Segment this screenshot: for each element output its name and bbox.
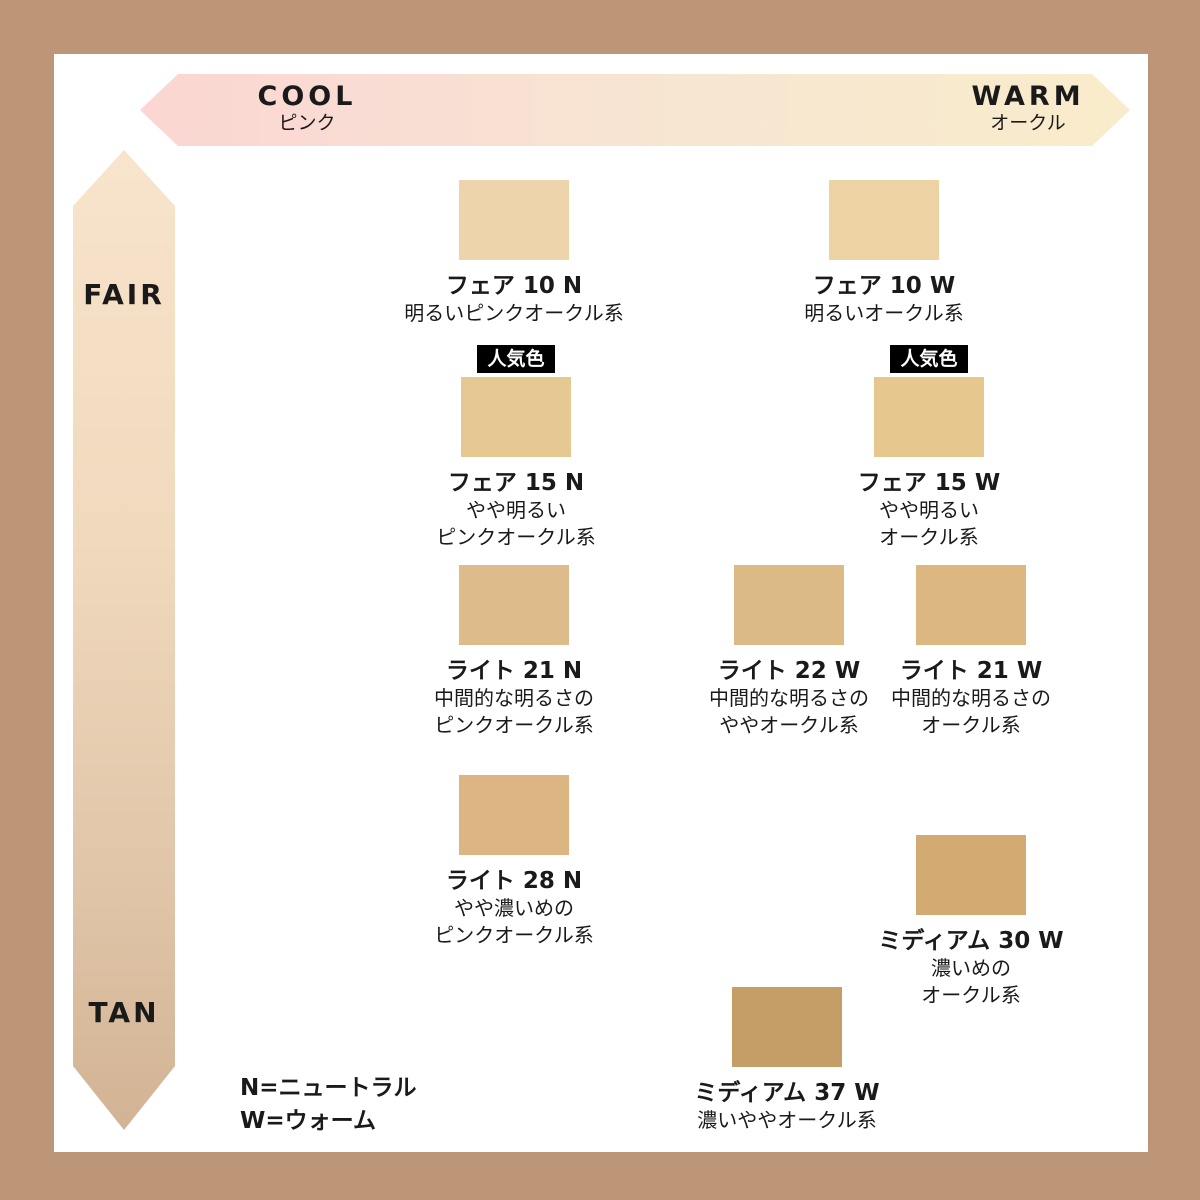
shade-name: ライト 21 W	[900, 658, 1042, 685]
shade-description: オークル系	[921, 982, 1020, 1009]
shade-description: オークル系	[879, 524, 978, 551]
legend-warm: W=ウォーム	[240, 1105, 417, 1138]
shade-swatch-light-28n	[459, 775, 569, 855]
shade-code-legend: N=ニュートラル W=ウォーム	[240, 1072, 417, 1138]
shade-description: ピンクオークル系	[434, 922, 593, 949]
chart-canvas: COOL ピンク WARM オークル FAIR TAN フェア 10 N 明るい…	[54, 54, 1148, 1152]
popular-badge: 人気色	[477, 345, 554, 373]
popular-badge: 人気色	[890, 345, 967, 373]
shade-fair-15n: 人気色 フェア 15 N やや明るい ピンクオークル系	[386, 345, 646, 551]
shade-medium-37w: ミディアム 37 W 濃いややオークル系	[657, 987, 917, 1134]
shade-name: ライト 22 W	[718, 658, 860, 685]
shade-medium-30w: ミディアム 30 W 濃いめの オークル系	[841, 835, 1101, 1009]
tan-label: TAN	[73, 996, 175, 1029]
shade-description: やや明るい	[879, 497, 979, 524]
shade-light-28n: ライト 28 N やや濃いめの ピンクオークル系	[384, 775, 644, 949]
shade-description: 濃いめの	[931, 955, 1011, 982]
shade-fair-15w: 人気色 フェア 15 W やや明るい オークル系	[799, 345, 1059, 551]
shade-light-21w: ライト 21 W 中間的な明るさの オークル系	[841, 565, 1101, 739]
shade-swatch-medium-37w	[732, 987, 842, 1067]
shade-swatch-fair-10w	[829, 180, 939, 260]
shade-name: ミディアム 30 W	[878, 928, 1063, 955]
shade-description: ピンクオークル系	[434, 712, 593, 739]
warm-axis-label: WARM オークル	[971, 74, 1084, 134]
shade-name: フェア 10 N	[446, 273, 582, 300]
shade-swatch-light-21n	[459, 565, 569, 645]
shade-swatch-light-22w	[734, 565, 844, 645]
shade-fair-10n: フェア 10 N 明るいピンクオークル系	[384, 180, 644, 327]
shade-name: ミディアム 37 W	[694, 1080, 879, 1107]
shade-name: ライト 21 N	[446, 658, 582, 685]
shade-description: やや濃いめの	[454, 895, 574, 922]
shade-name: ライト 28 N	[446, 868, 582, 895]
shade-description: 明るいピンクオークル系	[404, 300, 623, 327]
warm-label: WARM	[971, 82, 1084, 112]
shade-name: フェア 10 W	[813, 273, 955, 300]
cool-sublabel: ピンク	[258, 112, 357, 134]
shade-swatch-light-21w	[916, 565, 1026, 645]
legend-neutral: N=ニュートラル	[240, 1072, 417, 1105]
shade-description: オークル系	[921, 712, 1020, 739]
shade-swatch-fair-15w	[874, 377, 984, 457]
shade-description: 中間的な明るさの	[434, 685, 594, 712]
cool-axis-label: COOL ピンク	[258, 74, 357, 134]
shade-name: フェア 15 W	[858, 470, 1000, 497]
shade-description: 中間的な明るさの	[891, 685, 1051, 712]
shade-description: やや明るい	[466, 497, 566, 524]
foundation-shade-chart: COOL ピンク WARM オークル FAIR TAN フェア 10 N 明るい…	[0, 0, 1200, 1200]
fair-label: FAIR	[73, 278, 175, 311]
shade-description: 濃いややオークル系	[697, 1107, 876, 1134]
warm-sublabel: オークル	[971, 112, 1084, 134]
shade-name: フェア 15 N	[448, 470, 584, 497]
shade-fair-10w: フェア 10 W 明るいオークル系	[754, 180, 1014, 327]
shade-light-21n: ライト 21 N 中間的な明るさの ピンクオークル系	[384, 565, 644, 739]
cool-warm-axis-arrow: COOL ピンク WARM オークル	[140, 74, 1130, 146]
shade-swatch-fair-10n	[459, 180, 569, 260]
shade-description: 明るいオークル系	[804, 300, 963, 327]
shade-description: ややオークル系	[719, 712, 858, 739]
shade-swatch-fair-15n	[461, 377, 571, 457]
shade-description: ピンクオークル系	[436, 524, 595, 551]
shade-swatch-medium-30w	[916, 835, 1026, 915]
cool-label: COOL	[258, 82, 357, 112]
